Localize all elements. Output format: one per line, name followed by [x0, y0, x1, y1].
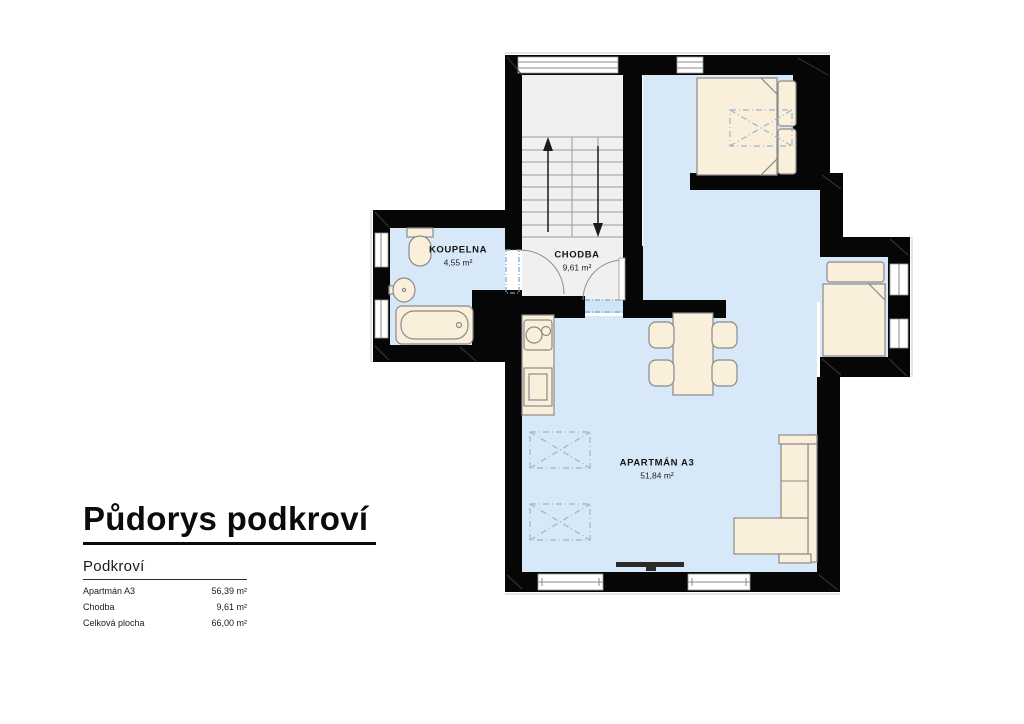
room-label-apartman: APARTMÁN A3 51,84 m² [620, 458, 695, 481]
window-alcove-lower [890, 319, 908, 348]
room-label-koupelna: KOUPELNA 4,55 m² [429, 245, 487, 268]
legend-label: Apartmán A3 [83, 586, 135, 596]
floorplan-page: KOUPELNA 4,55 m² CHODBA 9,61 m² APARTMÁN… [0, 0, 1024, 724]
window-bottom-left [538, 574, 603, 590]
room-area: 9,61 m² [554, 263, 599, 273]
legend: Podkroví Apartmán A3 56,39 m² Chodba 9,6… [83, 558, 247, 628]
legend-row: Celková plocha 66,00 m² [83, 618, 247, 628]
window-bottom-right [688, 574, 750, 590]
door-threshold [585, 300, 623, 313]
window-stairwell [518, 57, 618, 73]
legend-value: 56,39 m² [211, 586, 247, 596]
window-top-small [677, 57, 703, 73]
room-name: KOUPELNA [429, 245, 487, 256]
legend-label: Celková plocha [83, 618, 145, 628]
page-title: Půdorys podkroví [83, 500, 376, 545]
room-area: 51,84 m² [620, 471, 695, 481]
single-bed [823, 262, 885, 356]
legend-value: 9,61 m² [216, 602, 247, 612]
window-bathroom-upper [375, 233, 388, 267]
dining-table [673, 313, 713, 395]
room-name: CHODBA [554, 250, 599, 261]
bathtub [396, 306, 473, 344]
legend-row: Chodba 9,61 m² [83, 602, 247, 612]
title-block: Půdorys podkroví Podkroví Apartmán A3 56… [83, 500, 383, 634]
room-area: 4,55 m² [429, 258, 487, 268]
stove [524, 368, 552, 406]
window-bathroom-lower [375, 300, 388, 338]
room-label-chodba: CHODBA 9,61 m² [554, 250, 599, 273]
legend-value: 66,00 m² [211, 618, 247, 628]
room-name: APARTMÁN A3 [620, 458, 695, 469]
legend-row: Apartmán A3 56,39 m² [83, 586, 247, 596]
window-alcove-upper [890, 264, 908, 295]
legend-heading: Podkroví [83, 558, 247, 580]
kitchen-sink [524, 320, 552, 350]
legend-label: Chodba [83, 602, 115, 612]
double-bed [697, 78, 796, 175]
kitchen-counter [522, 315, 554, 415]
